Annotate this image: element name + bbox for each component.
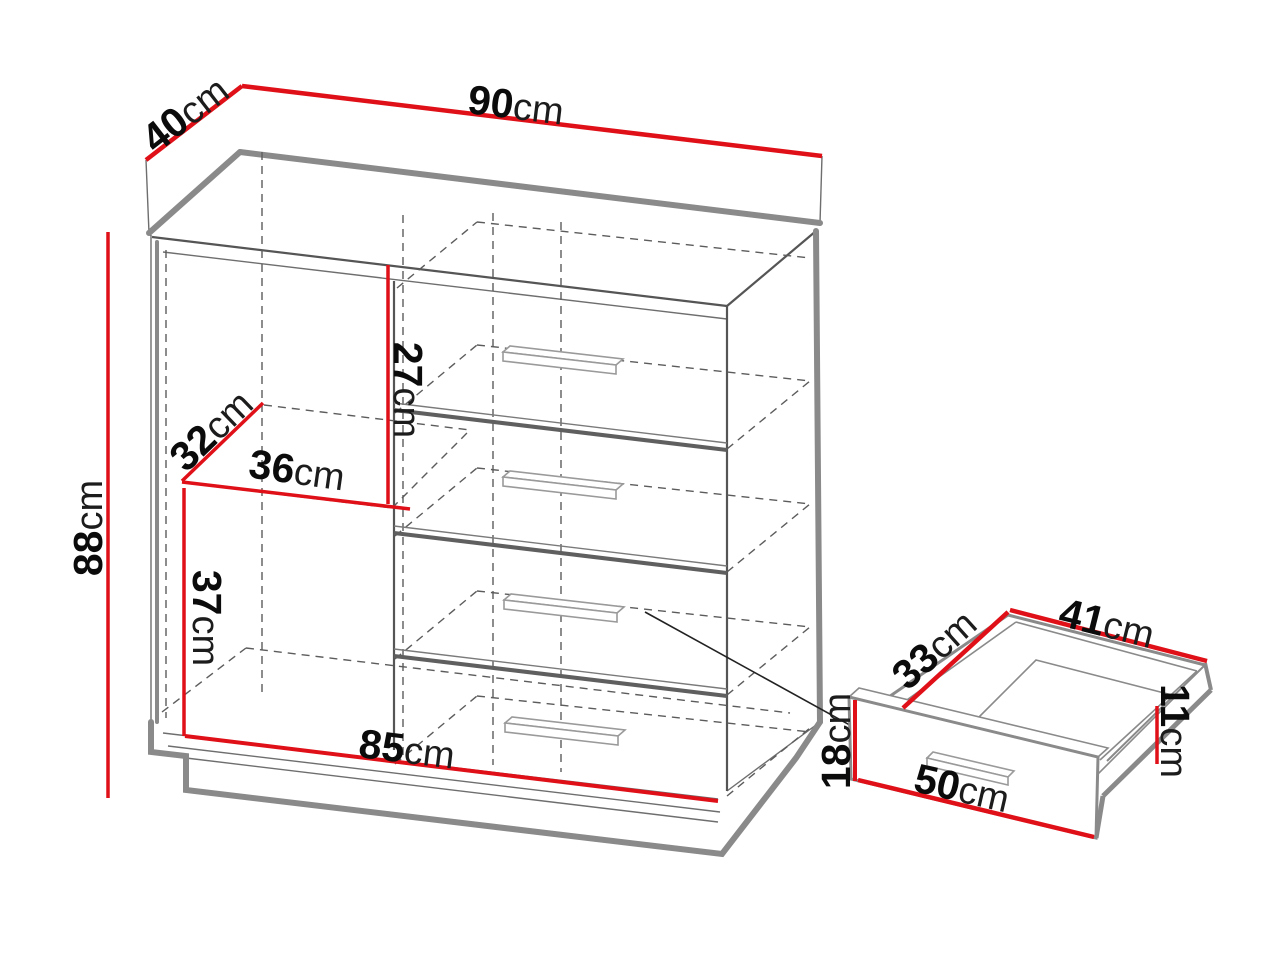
drawer-right-corner xyxy=(1205,663,1211,690)
diagram-canvas: 90cm 40cm 88cm 27cm 32cm 36cm 37cm 85cm … xyxy=(0,0,1280,960)
dim-85cm-label: 85cm xyxy=(356,720,457,777)
side-right-edge xyxy=(816,231,820,722)
body-top-edge xyxy=(152,237,727,306)
hidden-line xyxy=(395,591,477,659)
hidden-line xyxy=(246,648,790,713)
dim-88cm-label: 88cm xyxy=(65,480,111,576)
drawer-handles xyxy=(503,346,625,745)
cabinet-base xyxy=(151,722,820,854)
fronts-top-edge xyxy=(163,252,727,319)
dim-37cm-label: 37cm xyxy=(184,570,230,666)
drawer-3-bottom xyxy=(394,649,727,689)
drawer-handle-icon xyxy=(505,717,625,745)
dim-27cm-label: 27cm xyxy=(385,342,431,438)
dim-11cm-label: 11cm xyxy=(1152,684,1198,778)
dim-32cm-label: 32cm xyxy=(160,380,261,480)
shelf-side-edge xyxy=(392,430,470,508)
drawer-handle-icon xyxy=(503,471,623,499)
hidden-line xyxy=(397,222,477,288)
hidden-line xyxy=(727,728,810,796)
cabinet-body xyxy=(151,231,820,812)
hidden-line xyxy=(477,222,810,258)
drawer-handle-icon xyxy=(503,346,623,374)
side-top-edge xyxy=(727,231,816,306)
hidden-line xyxy=(727,627,810,695)
hidden-line xyxy=(727,381,810,449)
dim-18cm-label: 18cm xyxy=(813,693,859,789)
division-2 xyxy=(394,533,727,573)
base-outline xyxy=(151,722,820,854)
side-bottom-edge xyxy=(727,722,820,791)
hidden-line xyxy=(727,504,810,572)
drawer-handle-icon xyxy=(504,594,624,622)
hidden-line xyxy=(395,468,477,536)
division-1 xyxy=(394,410,727,450)
furniture-dimension-diagram: 90cm 40cm 88cm 27cm 32cm 36cm 37cm 85cm … xyxy=(0,0,1280,960)
